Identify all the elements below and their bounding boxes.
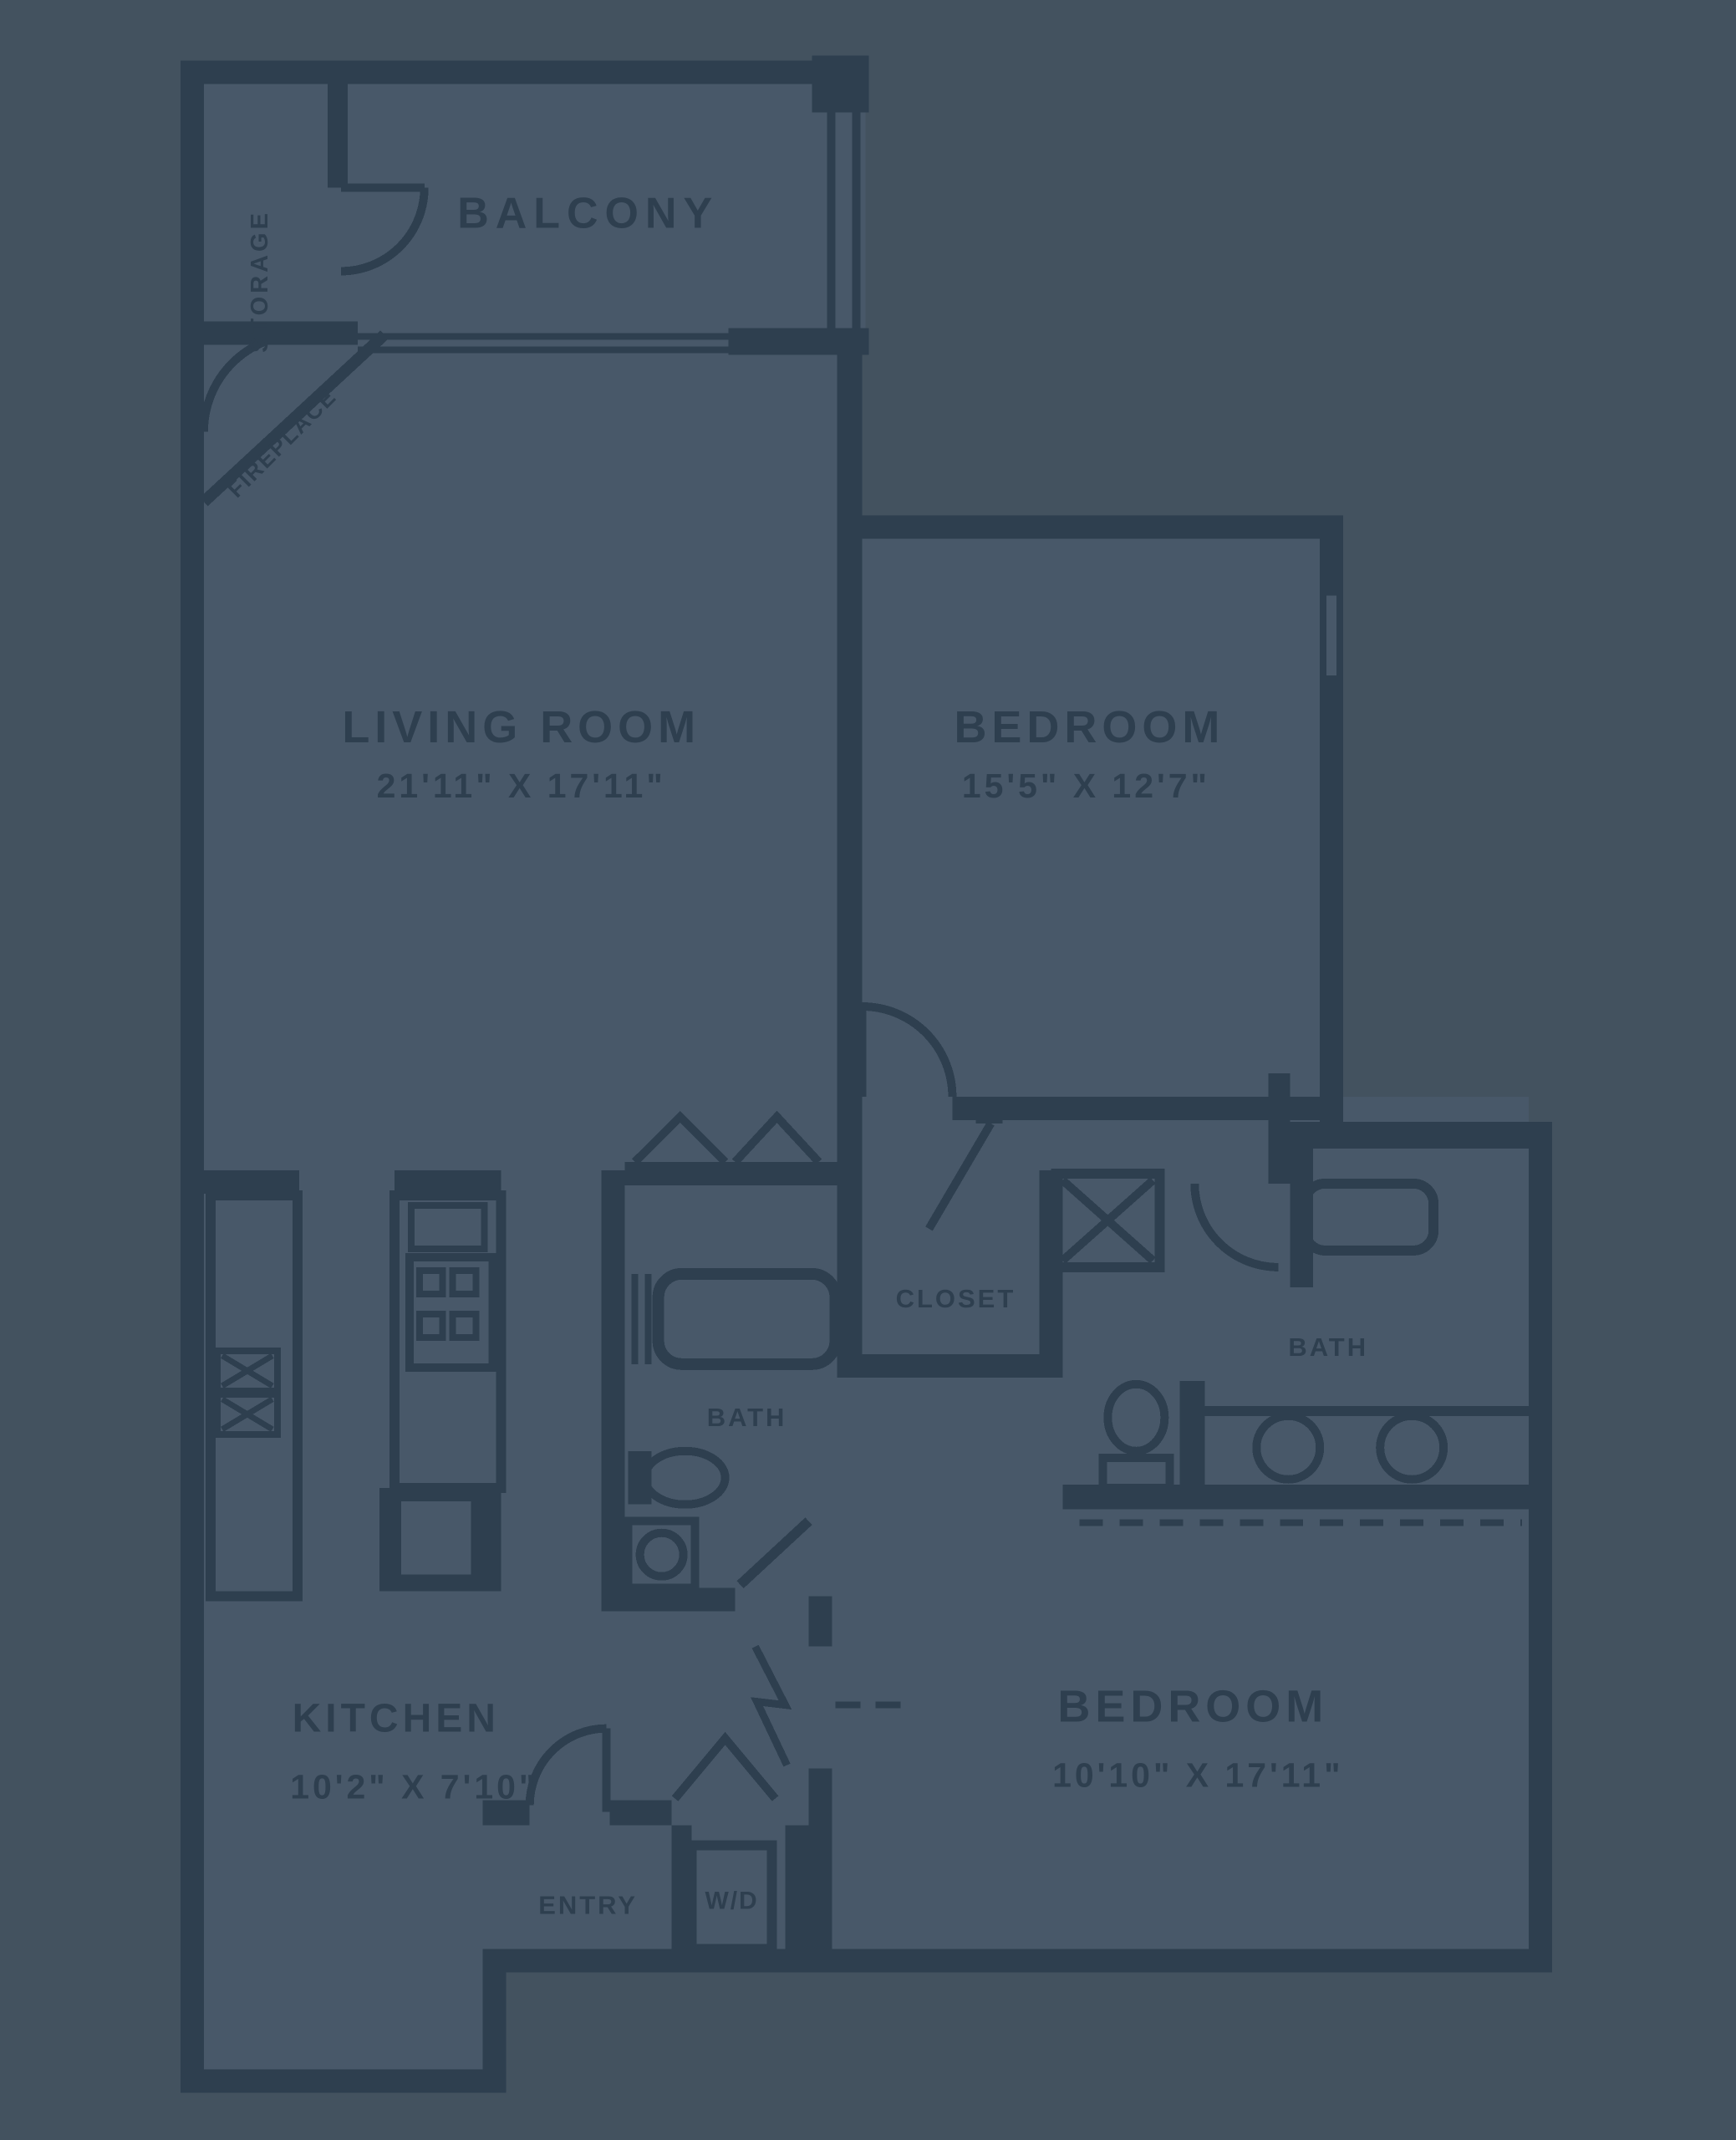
balcony-railing-line-2 [853, 113, 861, 332]
closet-label: CLOSET [896, 1284, 1016, 1313]
sliding-door-line-2 [358, 346, 729, 353]
living-room-label: LIVING ROOM [342, 702, 700, 752]
vanity-counter-edge [1204, 1406, 1529, 1416]
bedroom-1-label: BEDROOM [954, 702, 1224, 752]
left-outer-wall [181, 61, 204, 2093]
bath-2-label: BATH [1288, 1332, 1368, 1362]
floor-plan: BALCONY STORAGE FIREPLACE LIVING ROOM 21… [0, 0, 1736, 2140]
bedroom-2-left-wall-upper [809, 1597, 832, 1647]
balcony-corner-post [812, 56, 869, 113]
exterior-notch [507, 1972, 837, 2069]
bedroom-2-dims: 10'10" X 17'11" [1052, 1756, 1343, 1795]
storage-right-wall [328, 84, 348, 188]
wd-label: W/D [705, 1888, 758, 1915]
kitchen-peninsula-inset [401, 1501, 471, 1575]
shower-line-2 [645, 1274, 652, 1364]
sliding-door-line-1 [358, 333, 729, 339]
kitchen-top-wall-left [204, 1170, 299, 1194]
living-room-dims: 21'11" X 17'11" [377, 767, 666, 805]
bath-1-top-wall [625, 1162, 837, 1185]
bedroom-1-window [1326, 595, 1336, 675]
kitchen-dims: 10'2" X 7'10" [290, 1768, 538, 1806]
shower-line-1 [632, 1274, 639, 1364]
entry-label: ENTRY [538, 1891, 638, 1920]
bath-1-label: BATH [707, 1403, 787, 1432]
balcony-label: BALCONY [457, 189, 719, 237]
top-outer-wall [181, 61, 869, 84]
kitchen-label: KITCHEN [293, 1697, 500, 1741]
bottom-left-outer-wall [181, 2069, 507, 2092]
bottom-step-wall [483, 1972, 507, 2092]
bedroom-2-label: BEDROOM [1057, 1682, 1328, 1732]
bedroom-1-floor [863, 538, 1321, 1097]
bath-1-left-wall [602, 1170, 625, 1612]
storage-label: STORAGE [247, 210, 273, 353]
balcony-railing-line-1 [827, 113, 836, 332]
right-outer-wall [1529, 1122, 1552, 1973]
closet-bottom-wall [837, 1354, 1063, 1378]
kitchen-top-wall-right [395, 1170, 501, 1194]
bath-2-stub-wall [1179, 1381, 1204, 1488]
bedroom-1-dims: 15'5" X 12'7" [962, 767, 1210, 805]
bedroom-2-left-wall-lower [809, 1769, 832, 1973]
bedroom-1-top-wall [863, 515, 1344, 538]
entry-wall-right [610, 1801, 672, 1826]
bath-2-top-wall [1288, 1122, 1552, 1149]
living-bedroom-divider-wall [837, 334, 863, 1377]
floor-plan-svg: BALCONY STORAGE FIREPLACE LIVING ROOM 21… [0, 0, 1736, 2140]
closet-door-jamb [975, 1097, 1002, 1123]
bath-2-entry-wall [1268, 1073, 1290, 1184]
bottom-outer-wall [483, 1949, 1552, 1972]
